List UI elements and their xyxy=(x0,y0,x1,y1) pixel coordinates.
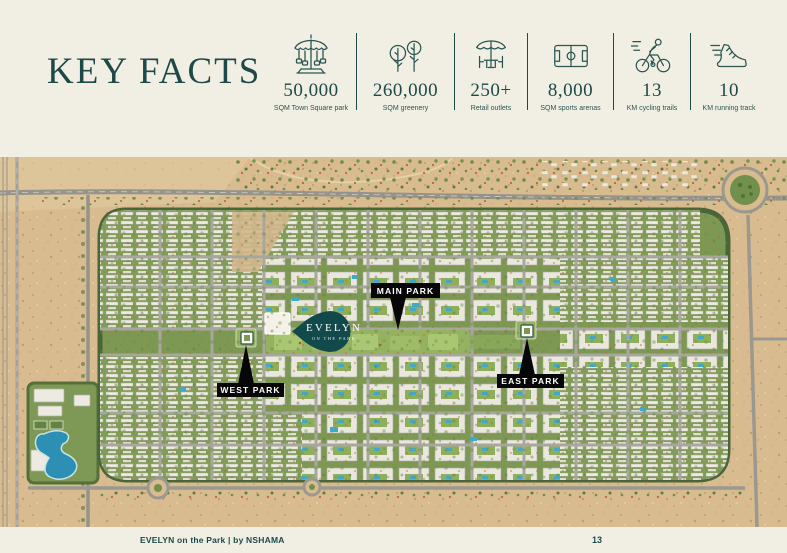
west-park-label: WEST PARK xyxy=(217,383,284,397)
cyclist-icon xyxy=(631,31,673,77)
page-title: KEY FACTS xyxy=(47,50,261,93)
stat-cycling-trails: 13 KM cycling trails xyxy=(614,31,690,112)
stat-value: 13 xyxy=(642,80,662,102)
stat-label: SQM sports arenas xyxy=(540,105,600,112)
stat-label: SQM Town Square park xyxy=(274,105,348,112)
key-facts-row: 50,000 SQM Town Square park 260,000 SQM … xyxy=(266,31,767,112)
stat-label: SQM greenery xyxy=(383,105,429,112)
main-park-label: MAIN PARK xyxy=(371,283,440,298)
map-image xyxy=(0,157,787,527)
stat-sports-arenas: 8,000 SQM sports arenas xyxy=(528,31,613,112)
east-park-label: EAST PARK xyxy=(497,374,564,388)
stat-town-square-park: 50,000 SQM Town Square park xyxy=(266,31,356,112)
stat-label: KM cycling trails xyxy=(627,105,678,112)
pin-project-name: EVELYN xyxy=(306,322,362,334)
header: KEY FACTS 50,000 SQM Town Square par xyxy=(0,0,787,157)
pin-text: EVELYN ON THE PARK xyxy=(310,309,358,354)
west-park-pointer xyxy=(238,345,254,384)
brochure-page: { "page": { "colors": { "background": "#… xyxy=(0,0,787,553)
stat-value: 8,000 xyxy=(548,80,593,102)
main-park-pointer xyxy=(390,297,406,330)
masterplan-map: MAIN PARK WEST PARK EAST PARK EVELYN ON … xyxy=(0,157,787,527)
stat-greenery: 260,000 SQM greenery xyxy=(357,31,454,112)
stat-value: 250+ xyxy=(470,80,511,102)
east-park-pointer xyxy=(519,338,535,375)
trees-icon xyxy=(385,31,427,77)
tent-camp xyxy=(540,161,700,187)
pin-tagline: ON THE PARK xyxy=(312,336,356,341)
stat-running-track: 10 KM running track xyxy=(691,31,767,112)
existing-community xyxy=(235,157,787,190)
facilities-zone xyxy=(28,383,98,483)
stat-retail-outlets: 250+ Retail outlets xyxy=(455,31,527,112)
stat-value: 260,000 xyxy=(373,80,438,102)
evelyn-location-pin: EVELYN ON THE PARK xyxy=(290,309,362,354)
carousel-icon xyxy=(289,31,333,77)
stat-value: 50,000 xyxy=(283,80,338,102)
development-blocks xyxy=(100,210,728,480)
page-number: 13 xyxy=(585,527,609,553)
running-shoe-icon xyxy=(708,31,750,77)
stat-value: 10 xyxy=(719,80,739,102)
footer-project-title: EVELYN on the Park | by NSHAMA xyxy=(140,527,285,553)
market-stall-icon xyxy=(470,31,512,77)
stat-label: KM running track xyxy=(703,105,756,112)
footer: EVELYN on the Park | by NSHAMA 13 xyxy=(0,527,787,553)
sports-field-icon xyxy=(550,31,592,77)
stat-label: Retail outlets xyxy=(471,105,511,112)
